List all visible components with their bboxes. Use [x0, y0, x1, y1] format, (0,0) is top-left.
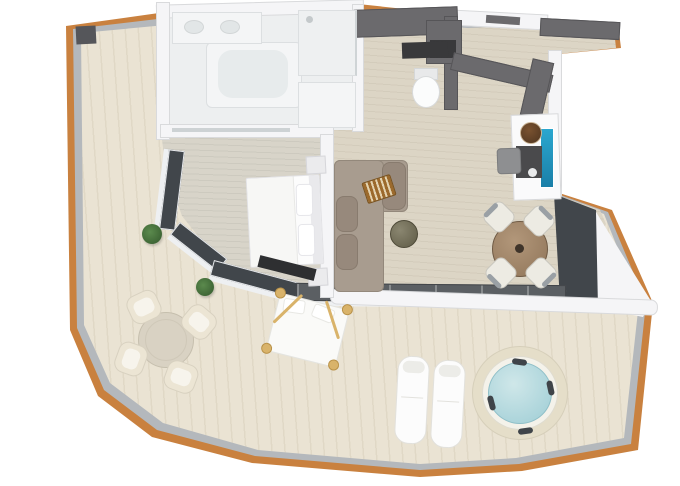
- hot-tub-water: [488, 362, 552, 424]
- balcony-privacy-partition: [76, 25, 97, 44]
- bed-duvet: [247, 176, 299, 266]
- sofa-cushion: [336, 196, 358, 232]
- wooden-bowl: [520, 122, 542, 144]
- blue-backlit-panel: [540, 128, 554, 188]
- bed-pillow: [296, 184, 314, 216]
- toilet: [412, 76, 440, 108]
- transom-window: [172, 128, 290, 132]
- bathtub-basin: [218, 50, 288, 98]
- console-sink: [528, 168, 537, 177]
- round-coffee-table: [390, 220, 418, 248]
- desk-chair: [497, 148, 522, 175]
- potted-plant: [142, 224, 162, 244]
- dining-table-centerpiece: [515, 244, 524, 253]
- sun-lounger: [394, 355, 431, 445]
- sofa-cushion: [336, 234, 358, 270]
- bathroom-counter: [298, 82, 356, 128]
- floor-plan-canvas: [0, 0, 680, 486]
- sink: [184, 20, 204, 34]
- king-bed: [246, 174, 325, 268]
- wc-counter: [402, 41, 449, 59]
- wall: [156, 2, 170, 140]
- shower-drain: [306, 16, 313, 23]
- sun-lounger: [430, 359, 467, 449]
- potted-plant: [196, 278, 214, 296]
- bed-pillow: [298, 224, 316, 256]
- nightstand: [306, 155, 327, 174]
- sink: [220, 20, 240, 34]
